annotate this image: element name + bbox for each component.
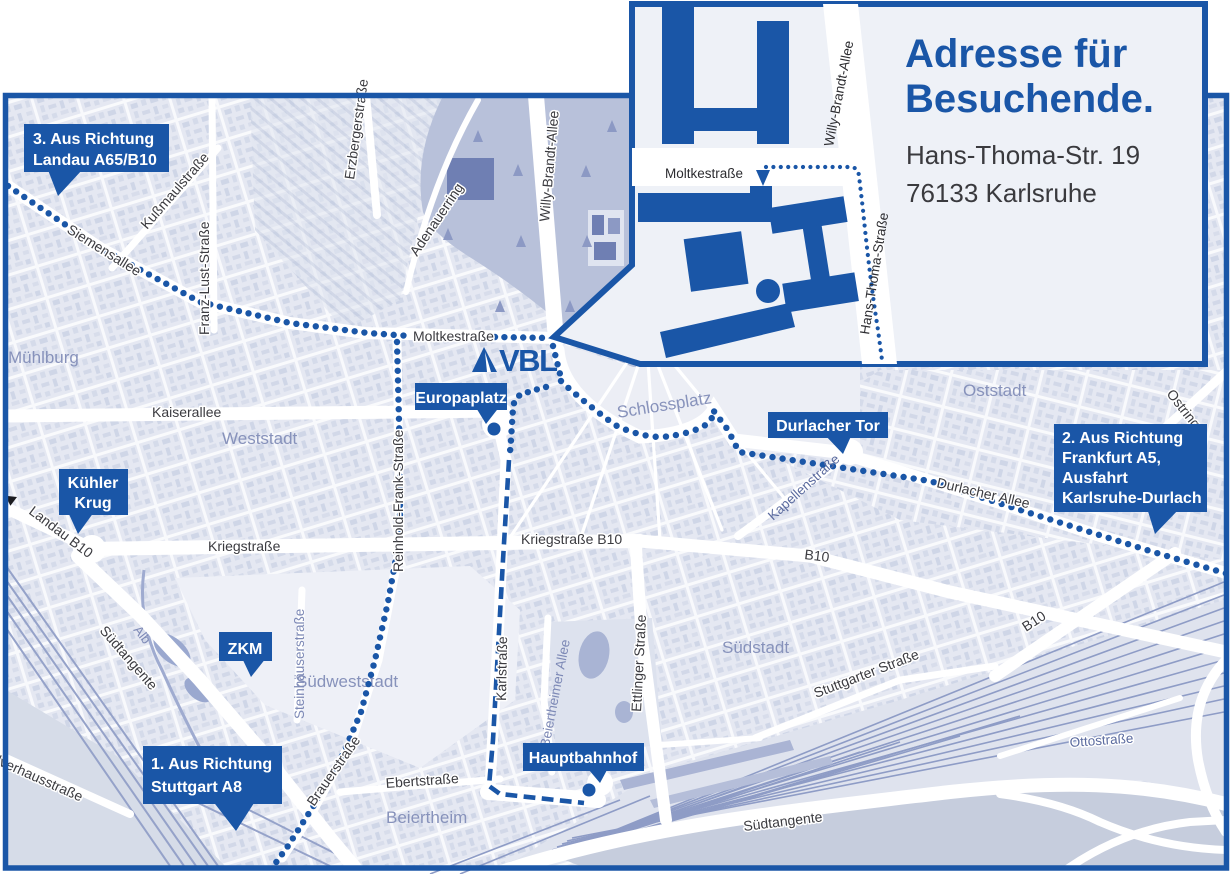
- svg-text:Landau A65/B10: Landau A65/B10: [33, 152, 157, 169]
- svg-text:Kriegstraße B10: Kriegstraße B10: [521, 531, 622, 547]
- svg-text:Oststadt: Oststadt: [963, 381, 1027, 400]
- svg-text:Weststadt: Weststadt: [222, 429, 298, 448]
- svg-text:Hauptbahnhof: Hauptbahnhof: [529, 750, 638, 767]
- svg-text:Kriegstraße: Kriegstraße: [208, 538, 281, 554]
- svg-text:Europaplatz: Europaplatz: [415, 390, 507, 407]
- svg-text:3. Aus Richtung: 3. Aus Richtung: [33, 131, 154, 148]
- svg-text:Ausfahrt: Ausfahrt: [1062, 470, 1128, 487]
- svg-text:76133 Karlsruhe: 76133 Karlsruhe: [906, 178, 1097, 208]
- svg-text:Kühler: Kühler: [68, 475, 119, 492]
- svg-text:Besuchende.: Besuchende.: [905, 77, 1154, 121]
- svg-text:Adresse für: Adresse für: [905, 32, 1127, 76]
- svg-text:Südweststadt: Südweststadt: [296, 672, 398, 691]
- svg-text:Karlstraße: Karlstraße: [493, 636, 510, 701]
- svg-text:Karlsruhe-Durlach: Karlsruhe-Durlach: [1062, 490, 1202, 507]
- svg-text:Beiertheim: Beiertheim: [386, 808, 467, 827]
- svg-text:Hans-Thoma-Str. 19: Hans-Thoma-Str. 19: [906, 140, 1140, 170]
- svg-text:Krug: Krug: [74, 495, 111, 512]
- svg-text:VBL: VBL: [499, 343, 557, 378]
- svg-text:Moltkestraße: Moltkestraße: [665, 166, 743, 181]
- svg-text:Franz-Lust-Straße: Franz-Lust-Straße: [196, 221, 212, 335]
- svg-text:Südstadt: Südstadt: [722, 638, 789, 657]
- svg-text:ZKM: ZKM: [228, 641, 263, 658]
- svg-text:Steinhäuserstraße: Steinhäuserstraße: [292, 609, 307, 719]
- svg-text:1. Aus Richtung: 1. Aus Richtung: [151, 756, 272, 773]
- svg-text:Moltkestraße: Moltkestraße: [413, 328, 494, 344]
- svg-text:B10: B10: [804, 546, 831, 565]
- svg-text:Stuttgart A8: Stuttgart A8: [151, 779, 242, 796]
- svg-text:Mühlburg: Mühlburg: [8, 348, 79, 367]
- svg-text:Durlacher Tor: Durlacher Tor: [776, 418, 880, 435]
- svg-text:Frankfurt A5,: Frankfurt A5,: [1062, 450, 1161, 467]
- svg-text:Reinhold-Frank-Straße: Reinhold-Frank-Straße: [390, 429, 406, 572]
- svg-text:2. Aus Richtung: 2. Aus Richtung: [1062, 430, 1183, 447]
- svg-text:Kaiserallee: Kaiserallee: [152, 404, 221, 420]
